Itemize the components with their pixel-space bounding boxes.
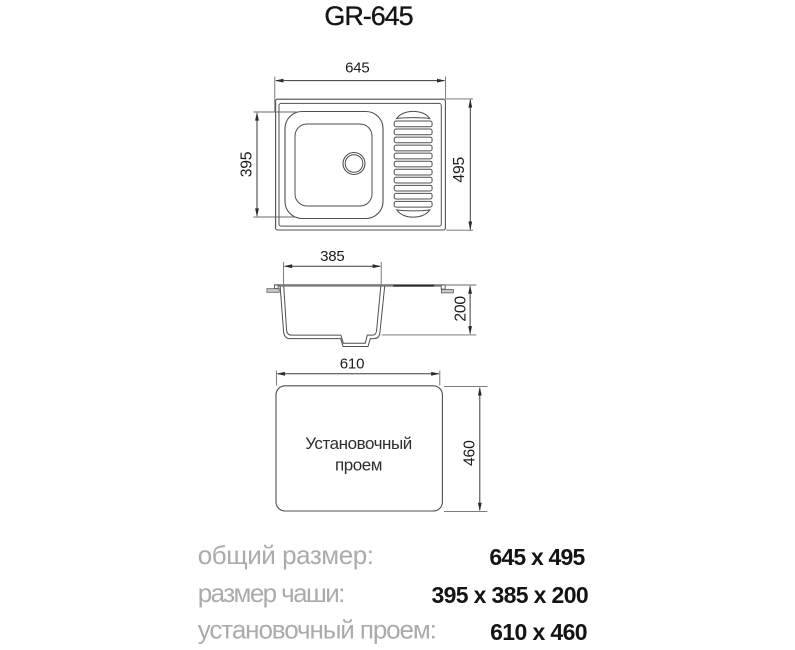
svg-text:общий размер:: общий размер: — [198, 540, 374, 570]
svg-text:размер чаши:: размер чаши: — [198, 578, 344, 608]
svg-text:200: 200 — [453, 296, 470, 322]
svg-text:645: 645 — [345, 60, 369, 77]
svg-text:460: 460 — [462, 440, 479, 466]
svg-text:495: 495 — [451, 157, 468, 183]
svg-text:установочный проем:: установочный проем: — [198, 615, 436, 645]
svg-text:395: 395 — [238, 151, 255, 177]
svg-text:395 x 385 x 200: 395 x 385 x 200 — [431, 582, 588, 608]
svg-text:GR-645: GR-645 — [324, 1, 412, 31]
svg-text:проем: проем — [335, 455, 382, 474]
svg-text:385: 385 — [320, 248, 344, 265]
svg-text:Установочный: Установочный — [305, 434, 412, 453]
svg-text:645 x 495: 645 x 495 — [489, 544, 585, 570]
svg-text:610: 610 — [340, 355, 364, 372]
svg-text:610 x 460: 610 x 460 — [490, 619, 587, 645]
